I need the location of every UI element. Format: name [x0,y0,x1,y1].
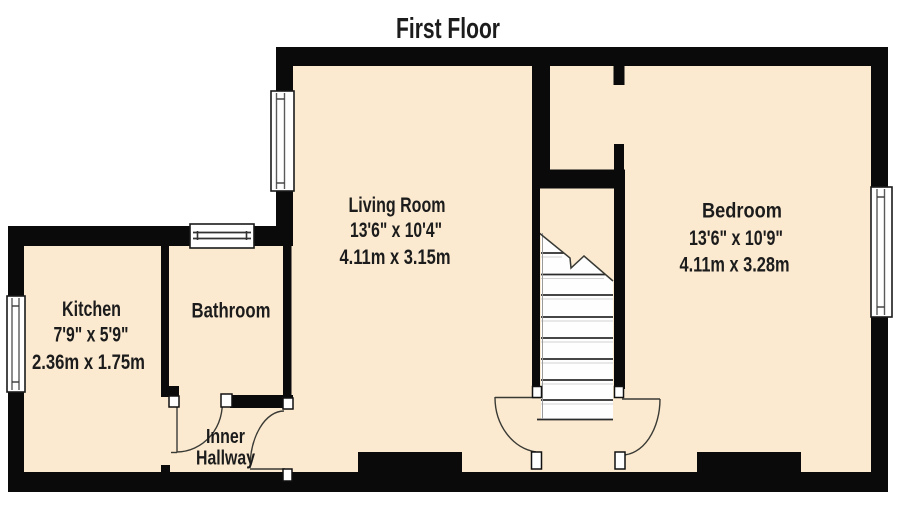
svg-text:Inner: Inner [206,426,245,448]
svg-text:Kitchen: Kitchen [62,298,121,321]
svg-text:Bathroom: Bathroom [192,300,271,323]
svg-text:13'6" x 10'9": 13'6" x 10'9" [689,227,783,250]
svg-text:4.11m x 3.15m: 4.11m x 3.15m [340,246,451,269]
svg-text:Bedroom: Bedroom [702,200,782,223]
svg-text:Living Room: Living Room [349,194,446,217]
svg-text:7'9" x 5'9": 7'9" x 5'9" [54,324,129,347]
svg-text:2.36m x 1.75m: 2.36m x 1.75m [32,351,145,374]
svg-text:Hallway: Hallway [196,448,256,470]
svg-text:13'6" x 10'4": 13'6" x 10'4" [350,219,442,242]
svg-text:First Floor: First Floor [396,13,500,45]
svg-text:4.11m x 3.28m: 4.11m x 3.28m [680,254,790,277]
